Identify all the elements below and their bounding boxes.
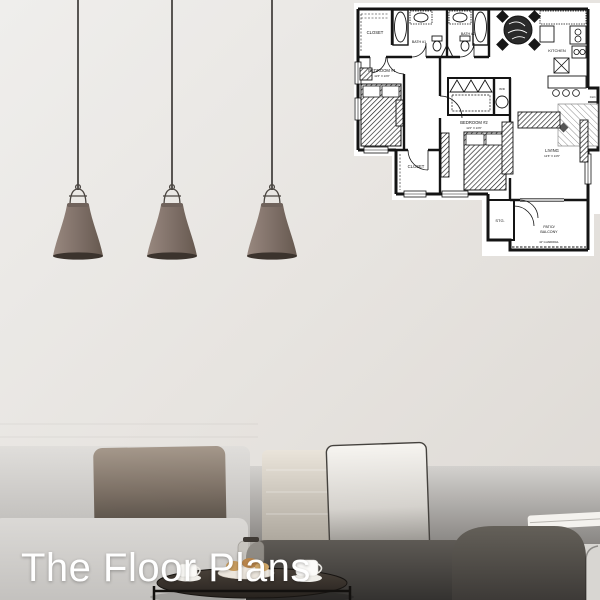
living-cabinet	[580, 120, 588, 162]
floor-plan: CLOSET BATH #1 BATH #2 BEDROOM #1 11'6" …	[352, 0, 600, 258]
lamp-shade-opening	[247, 252, 297, 259]
label-washer: W/D	[499, 87, 506, 91]
lamp-shade-cap	[161, 203, 183, 207]
label-bath-2: BATH #2	[461, 32, 475, 36]
label-bedroom-2: BEDROOM #2	[460, 120, 488, 125]
label-living-dims: 12'6" X 13'6"	[544, 154, 560, 158]
label-closet-2: CLOSET	[408, 164, 425, 169]
label-guardrail: 42" GUARDRAIL	[539, 240, 559, 244]
label-patio-2: BALCONY	[540, 230, 558, 234]
page-title: The Floor Plans	[21, 546, 311, 591]
pillow-white	[326, 442, 430, 551]
living-cabinet	[502, 122, 513, 174]
lamp-shade-opening	[53, 252, 103, 259]
lamp-shade-opening	[147, 252, 197, 259]
lamp-shade-cap	[261, 203, 283, 207]
hero-image: CLOSET BATH #1 BATH #2 BEDROOM #1 11'6" …	[0, 0, 600, 600]
label-bedroom-1: BEDROOM #1	[368, 68, 396, 73]
lamp-shade-cap	[67, 203, 89, 207]
label-living: LIVING	[545, 148, 559, 153]
wardrobe	[441, 133, 449, 177]
label-bedroom-2-dims: 11'0" X 13'6"	[466, 126, 482, 130]
label-bath-1: BATH #1	[412, 40, 426, 44]
living-sofa	[518, 112, 560, 128]
label-kitchen: KITCHEN	[548, 48, 566, 53]
label-bedroom-1-dims: 11'6" X 13'0"	[374, 74, 390, 78]
knit-throw	[262, 450, 332, 548]
label-closet-1: CLOSET	[367, 30, 384, 35]
label-clo: CLO.	[590, 95, 597, 99]
sofa-right-cushion-dark	[452, 526, 586, 600]
dresser	[396, 100, 403, 126]
label-stg: STG.	[495, 218, 504, 223]
label-patio-1: PATIO/	[543, 225, 554, 229]
